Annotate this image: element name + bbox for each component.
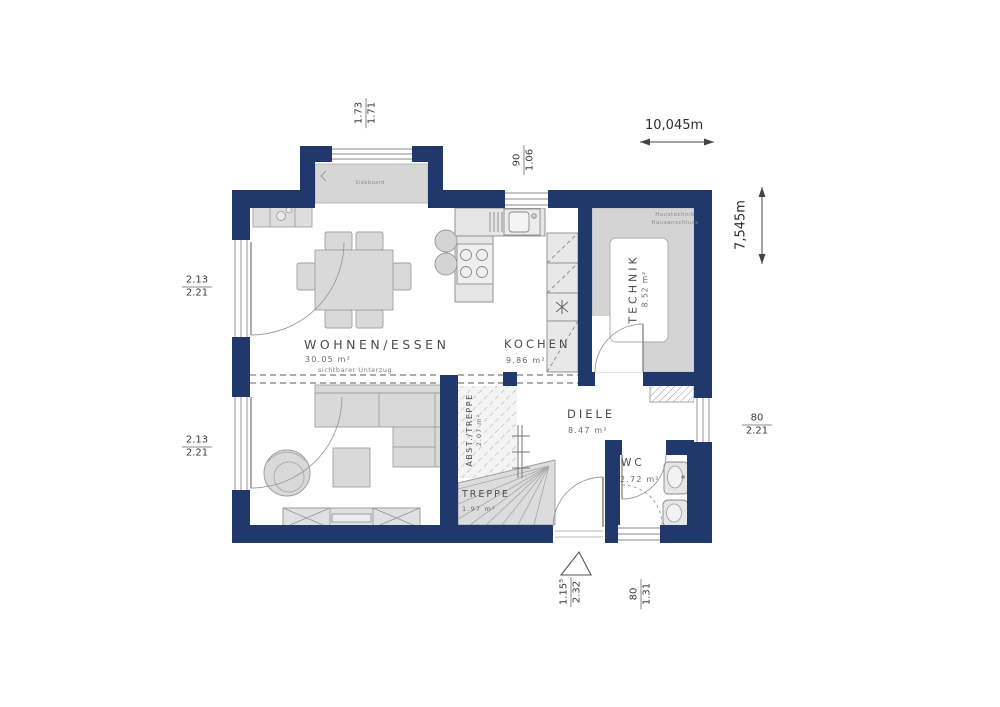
- dim-value: 2.13: [182, 275, 212, 287]
- dim-value: 1.71: [366, 98, 379, 128]
- room-area-wohnen: 30.05 m²: [305, 355, 351, 364]
- dim-terrace-door-lower: 2.13 2.21: [182, 435, 212, 460]
- entrance-door-swing: [553, 477, 603, 527]
- wc-window: [618, 525, 660, 543]
- ceiling-beam: [250, 375, 578, 383]
- wc-window-swing: [622, 485, 662, 525]
- room-label-abstellraum: ABST./TREPPE: [465, 393, 474, 466]
- armchair: [264, 450, 310, 496]
- room-area-wc: 2.72 m²: [620, 475, 660, 484]
- dim-overall-height: 7,545m: [734, 200, 749, 250]
- kitchen-window: [505, 190, 548, 208]
- room-area-diele: 8.47 m²: [568, 426, 608, 435]
- room-area-abstellraum: 2.07 m²: [475, 414, 483, 446]
- room-label-diele: DIELE: [567, 407, 615, 421]
- dim-terrace-door-upper: 2.13 2.21: [182, 275, 212, 300]
- bar-stools: [435, 230, 457, 275]
- room-label-treppe: TREPPE: [462, 489, 510, 500]
- room-label-wc: WC: [621, 457, 645, 469]
- dim-value: 2.21: [742, 425, 772, 438]
- room-area-kochen: 9.86 m²: [506, 356, 546, 365]
- diele-window: [694, 398, 712, 442]
- beam-label: sichtbarer Unterzug: [318, 366, 392, 374]
- dim-diele-window: 80 2.21: [742, 413, 772, 438]
- room-area-technik: 8.52 m²: [641, 271, 650, 307]
- dining-table: [315, 250, 393, 310]
- room-label-technik: TECHNIK: [627, 254, 640, 323]
- dim-value: 2.21: [182, 447, 212, 460]
- entrance-door-gap: [553, 525, 605, 543]
- dim-value: 1.73: [354, 98, 366, 128]
- dim-value: 2.13: [182, 435, 212, 447]
- dim-value: 80: [747, 413, 768, 425]
- technik-note-line1: Haustechnik: [620, 212, 730, 218]
- dim-value: 1.15⁵: [559, 575, 571, 609]
- wc-toilet: [663, 500, 688, 527]
- dim-bay-window: 1.73 1.71: [354, 98, 379, 128]
- dining-set: [297, 232, 411, 328]
- floorplan-canvas: WOHNEN/ESSEN 30.05 m² KOCHEN 9.86 m² DIE…: [0, 0, 1000, 707]
- sideboard-top-left: [253, 205, 312, 227]
- dim-entrance-door: 1.15⁵ 2.32: [559, 575, 584, 609]
- dim-value: 1.31: [641, 579, 654, 609]
- room-label-abst-block: ABST./TREPPE 2.07 m²: [465, 393, 483, 466]
- coffee-table: [333, 448, 370, 487]
- tall-cabinets: [547, 233, 578, 372]
- dim-value: 90: [512, 150, 524, 171]
- dim-overall-width: 10,045m: [645, 118, 703, 133]
- dim-wc-window: 80 1.31: [629, 579, 654, 609]
- dim-value: 2.32: [571, 577, 584, 607]
- room-label-technik-block: TECHNIK 8.52 m²: [627, 254, 650, 323]
- stove: [457, 244, 493, 284]
- room-label-wohnen: WOHNEN/ESSEN: [304, 337, 449, 352]
- technik-note-line2: Hausanschluss: [620, 220, 730, 226]
- dim-kitchen-window: 90 1.06: [512, 145, 537, 175]
- dim-value: 80: [629, 584, 641, 605]
- bay-band-label: Sideboard: [340, 180, 400, 186]
- kitchen-counter: [455, 208, 545, 302]
- bay-window: [332, 146, 412, 162]
- dimension-width-arrow: [640, 139, 714, 146]
- room-label-kochen: KOCHEN: [504, 337, 571, 351]
- room-area-treppe: 1.97 m²: [462, 505, 496, 513]
- wc-washbasin: [664, 462, 688, 494]
- dim-value: 2.21: [182, 287, 212, 300]
- terrace-door-lower: [232, 397, 250, 490]
- entrance-arrow-icon: [561, 552, 591, 575]
- dimension-height-arrow: [759, 187, 766, 264]
- terrace-door-upper: [232, 240, 250, 337]
- dim-value: 1.06: [524, 145, 537, 175]
- floorplan-drawing: [0, 0, 1000, 707]
